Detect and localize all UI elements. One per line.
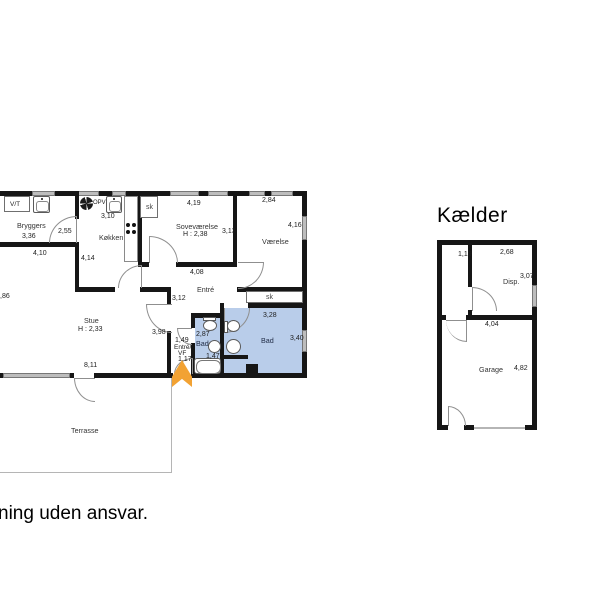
room-label-kokken: Køkken bbox=[99, 234, 123, 242]
room-label-stue: Stue bbox=[84, 317, 99, 325]
sink-basin bbox=[109, 201, 121, 212]
dim: 2,68 bbox=[500, 249, 514, 257]
vt-label: V/T bbox=[10, 201, 20, 208]
window bbox=[3, 373, 70, 378]
room-label-sovevaerelse: Soveværelse bbox=[176, 223, 218, 231]
dim: 3,36 bbox=[22, 233, 36, 241]
wall bbox=[437, 240, 537, 245]
wall bbox=[248, 303, 307, 308]
dim: 4,04 bbox=[485, 321, 499, 329]
window bbox=[208, 191, 228, 196]
door-arc bbox=[74, 378, 95, 402]
wall bbox=[94, 373, 173, 378]
dim: 2,84 bbox=[262, 197, 276, 205]
terrace-edge bbox=[171, 378, 172, 473]
dim: 4,10 bbox=[33, 250, 47, 258]
dim: 4,82 bbox=[514, 365, 528, 373]
basement-title: Kælder bbox=[437, 204, 508, 228]
door-arc bbox=[472, 287, 497, 311]
wall bbox=[437, 240, 442, 430]
dim: 1,19 bbox=[458, 251, 472, 259]
window bbox=[271, 191, 293, 196]
floorplan-page: V/T sk sk bbox=[0, 0, 600, 600]
wall bbox=[525, 425, 537, 430]
window bbox=[170, 191, 199, 196]
dim: 1,17 bbox=[178, 356, 192, 364]
wall bbox=[468, 240, 472, 287]
window bbox=[532, 285, 537, 307]
burner bbox=[126, 230, 130, 234]
ceiling-height: H : 2,38 bbox=[183, 231, 208, 239]
stove-icon bbox=[125, 221, 137, 238]
dim: 3,10 bbox=[101, 213, 115, 221]
closet-box: sk bbox=[140, 196, 158, 218]
room-label-terrasse: Terrasse bbox=[71, 427, 99, 435]
door-arc bbox=[238, 262, 264, 289]
dim: ,86 bbox=[0, 293, 10, 301]
door-arc bbox=[149, 236, 178, 263]
opv-label: OPV bbox=[93, 200, 106, 207]
wall bbox=[532, 240, 537, 430]
wall bbox=[437, 425, 448, 430]
disclaimer-text: ning uden ansvar. bbox=[0, 503, 148, 525]
wall bbox=[437, 315, 446, 320]
wall bbox=[191, 313, 195, 328]
room-label-bryggers: Bryggers bbox=[17, 222, 46, 230]
dim: 3,40 bbox=[290, 335, 304, 343]
dim: 1,47 bbox=[206, 353, 220, 361]
door-arc bbox=[446, 320, 467, 342]
room-label-entre: Entré bbox=[197, 286, 214, 294]
faucet-dot bbox=[41, 198, 43, 200]
dim: 4,19 bbox=[187, 200, 201, 208]
wall bbox=[75, 242, 79, 292]
dim: 3,28 bbox=[263, 312, 277, 320]
wall bbox=[176, 262, 237, 267]
dim: 3,07 bbox=[520, 273, 534, 281]
extractor-fan-icon bbox=[80, 197, 93, 210]
burner bbox=[132, 230, 136, 234]
terrace-edge bbox=[0, 472, 172, 473]
wall bbox=[167, 287, 171, 304]
room-label-bad-small: Bad bbox=[196, 340, 209, 348]
dim: 3,12 bbox=[172, 295, 186, 303]
closet-label: sk bbox=[146, 204, 153, 212]
toilet-icon bbox=[203, 320, 217, 331]
toilet-icon bbox=[227, 320, 240, 332]
sink-icon bbox=[33, 196, 50, 213]
closet-box: sk bbox=[246, 291, 303, 303]
dim: 8,11 bbox=[84, 362, 97, 370]
dim: 2,87 bbox=[196, 331, 210, 339]
washbasin-icon bbox=[226, 339, 241, 354]
dim: 2,55 bbox=[58, 228, 72, 236]
window bbox=[76, 191, 99, 196]
room-label-vaerelse: Værelse bbox=[262, 238, 289, 246]
door-arc bbox=[118, 265, 142, 288]
burner bbox=[132, 223, 136, 227]
washbasin-icon bbox=[208, 340, 221, 353]
room-label-disp: Disp. bbox=[503, 278, 519, 286]
burner bbox=[126, 223, 130, 227]
washer-dryer-box: V/T bbox=[4, 196, 30, 212]
wall bbox=[75, 191, 79, 219]
wall bbox=[75, 287, 115, 292]
room-label-garage: Garage bbox=[479, 366, 503, 374]
faucet-dot bbox=[113, 198, 115, 200]
closet-label: sk bbox=[266, 294, 273, 302]
ceiling-height: H : 2,33 bbox=[78, 326, 103, 334]
wall bbox=[466, 315, 537, 320]
window bbox=[249, 191, 265, 196]
wall bbox=[233, 191, 237, 262]
sink-icon bbox=[106, 196, 122, 213]
bathtub-inner bbox=[196, 360, 221, 374]
dim: 4,16 bbox=[288, 222, 302, 230]
room-label-bad-large: Bad bbox=[261, 337, 274, 345]
window bbox=[302, 216, 307, 240]
floor-drain bbox=[246, 364, 258, 373]
dim: 4,14 bbox=[81, 255, 95, 263]
dim: 3,98 bbox=[152, 329, 166, 337]
door-arc bbox=[448, 406, 466, 426]
sink-basin bbox=[36, 201, 49, 212]
wall bbox=[224, 355, 248, 359]
dim: 3,13 bbox=[222, 228, 236, 236]
garage-door-line bbox=[474, 427, 525, 429]
wall bbox=[167, 331, 171, 378]
dim: 4,08 bbox=[190, 269, 204, 277]
